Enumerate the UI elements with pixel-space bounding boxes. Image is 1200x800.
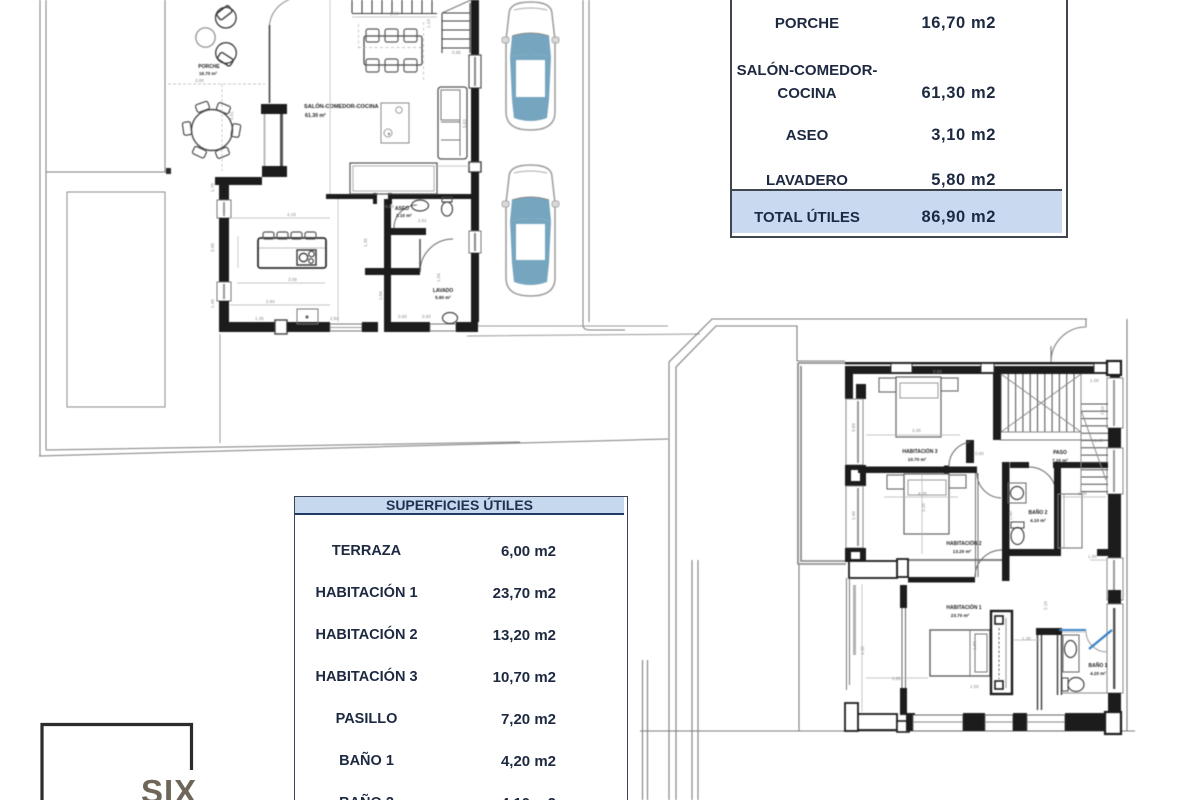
svg-text:1.40: 1.40: [210, 299, 215, 308]
svg-text:3.20: 3.20: [921, 503, 926, 512]
svg-text:BAÑO 1: BAÑO 1: [1089, 662, 1108, 669]
svg-text:3.60: 3.60: [851, 423, 856, 432]
svg-text:3.00: 3.00: [195, 78, 204, 83]
svg-text:2.61: 2.61: [418, 218, 427, 223]
svg-text:16.70 m²: 16.70 m²: [199, 71, 218, 76]
svg-text:4.19: 4.19: [287, 212, 296, 217]
svg-text:1.60: 1.60: [972, 641, 977, 650]
svg-text:1.00: 1.00: [1090, 378, 1099, 383]
svg-text:BAÑO 2: BAÑO 2: [1029, 509, 1048, 516]
svg-text:0.60: 0.60: [933, 369, 942, 374]
svg-text:4.20 m²: 4.20 m²: [1090, 671, 1106, 676]
svg-text:0.60: 0.60: [385, 204, 394, 209]
svg-text:0.60: 0.60: [975, 451, 984, 456]
svg-text:1.00: 1.00: [1088, 554, 1097, 559]
svg-text:5.80 m²: 5.80 m²: [435, 295, 451, 300]
svg-text:2.60: 2.60: [892, 676, 901, 681]
svg-text:2.80: 2.80: [390, 11, 399, 16]
svg-text:7.20 m²: 7.20 m²: [1052, 458, 1068, 463]
svg-text:4.30: 4.30: [860, 646, 865, 655]
svg-text:3.30: 3.30: [912, 428, 921, 433]
svg-text:1.35: 1.35: [363, 238, 368, 247]
svg-text:1.40: 1.40: [1078, 491, 1087, 496]
svg-text:1.00: 1.00: [1008, 511, 1013, 520]
svg-text:HABITACIÓN 1: HABITACIÓN 1: [946, 603, 981, 611]
svg-text:1.04: 1.04: [378, 291, 383, 300]
svg-text:5.51: 5.51: [229, 111, 234, 120]
svg-text:3.09: 3.09: [288, 277, 297, 282]
svg-text:2.10: 2.10: [1100, 406, 1105, 415]
svg-text:1.50: 1.50: [970, 684, 979, 689]
svg-text:SIX: SIX: [141, 773, 197, 800]
svg-text:HABITACIÓN 3: HABITACIÓN 3: [902, 447, 937, 455]
svg-text:13.20 m²: 13.20 m²: [953, 549, 972, 554]
svg-text:PASO: PASO: [1053, 450, 1067, 456]
svg-text:ASEO: ASEO: [395, 206, 409, 212]
svg-text:LAVADO: LAVADO: [433, 288, 453, 294]
svg-text:SALÓN-COMEDOR-COCINA: SALÓN-COMEDOR-COCINA: [304, 102, 379, 110]
svg-text:0.95: 0.95: [452, 50, 461, 55]
svg-text:1.35: 1.35: [255, 316, 264, 321]
svg-text:23.70 m²: 23.70 m²: [951, 613, 970, 618]
svg-text:1.40: 1.40: [1094, 438, 1103, 443]
svg-text:3.98: 3.98: [210, 243, 215, 252]
svg-text:1.13: 1.13: [426, 19, 431, 28]
svg-text:0.93: 0.93: [422, 314, 431, 319]
svg-text:0.60: 0.60: [398, 314, 407, 319]
svg-text:61.30 m²: 61.30 m²: [305, 113, 326, 119]
svg-text:2.84: 2.84: [330, 316, 339, 321]
svg-text:1.30: 1.30: [1022, 636, 1031, 641]
svg-text:HABITACIÓN 2: HABITACIÓN 2: [946, 539, 981, 547]
svg-text:2.10: 2.10: [1043, 601, 1048, 610]
svg-text:10.70 m²: 10.70 m²: [908, 457, 927, 462]
svg-text:2.40: 2.40: [851, 511, 856, 520]
svg-text:5.63: 5.63: [462, 119, 467, 128]
svg-text:4.10 m²: 4.10 m²: [1030, 518, 1046, 523]
svg-text:1.04: 1.04: [436, 273, 441, 282]
svg-text:4.25: 4.25: [918, 491, 927, 496]
svg-text:PORCHE: PORCHE: [198, 64, 220, 70]
svg-text:2.84: 2.84: [266, 299, 275, 304]
svg-text:3.10 m²: 3.10 m²: [396, 213, 412, 218]
svg-text:1.70: 1.70: [210, 183, 215, 192]
